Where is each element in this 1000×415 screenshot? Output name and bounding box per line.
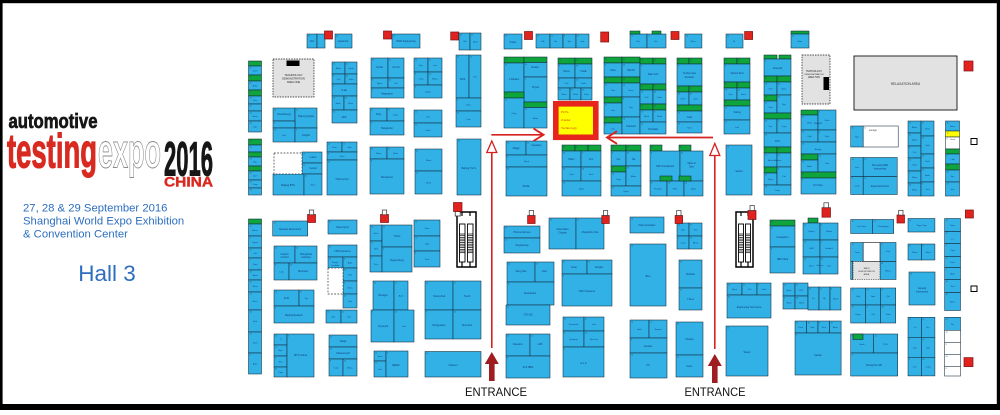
svg-text:18: 18 <box>804 259 806 261</box>
svg-text:10: 10 <box>505 36 507 38</box>
svg-text:SAVE: SAVE <box>523 184 530 188</box>
svg-text:10: 10 <box>333 64 335 66</box>
svg-text:12: 12 <box>923 319 925 321</box>
svg-text:24: 24 <box>576 66 578 68</box>
svg-text:10: 10 <box>725 60 727 62</box>
svg-text:Test: Test <box>282 134 286 137</box>
svg-text:8: 8 <box>923 246 924 248</box>
svg-text:6: 6 <box>559 80 560 82</box>
svg-text:12: 12 <box>875 336 877 338</box>
svg-text:Cetim: Cetim <box>687 365 693 368</box>
svg-text:Tech: Tech <box>825 136 830 138</box>
svg-text:Hirain & Goldser: Hirain & Goldser <box>639 224 656 227</box>
svg-text:12: 12 <box>296 110 298 112</box>
svg-text:Vibro: Vibro <box>673 188 679 191</box>
svg-text:10: 10 <box>457 57 459 59</box>
svg-text:12: 12 <box>867 290 869 292</box>
svg-text:Gm: Gm <box>617 159 621 161</box>
svg-text:18: 18 <box>765 135 767 137</box>
svg-text:CHINA: CHINA <box>164 175 213 190</box>
svg-text:Tech: Tech <box>925 161 930 163</box>
svg-text:Meas: Meas <box>631 176 637 178</box>
svg-text:10: 10 <box>605 59 607 61</box>
svg-text:8: 8 <box>564 333 565 335</box>
svg-text:8: 8 <box>589 147 590 149</box>
svg-text:14: 14 <box>250 294 252 296</box>
svg-text:6: 6 <box>344 283 345 285</box>
svg-text:8: 8 <box>678 66 679 68</box>
svg-text:Meas: Meas <box>252 230 258 232</box>
svg-text:10: 10 <box>329 222 331 224</box>
svg-text:10: 10 <box>728 285 730 287</box>
svg-text:8: 8 <box>275 358 276 360</box>
svg-text:Auto: Auto <box>253 363 258 366</box>
svg-text:Hangsterfer: Hangsterfer <box>381 127 393 130</box>
svg-text:10: 10 <box>564 319 566 321</box>
svg-text:24: 24 <box>585 333 587 335</box>
svg-text:Chn Int: Chn Int <box>392 66 400 69</box>
svg-text:8: 8 <box>651 153 652 155</box>
svg-text:24: 24 <box>525 64 527 66</box>
svg-text:12: 12 <box>371 243 373 245</box>
svg-text:Webasto: Webasto <box>686 273 696 276</box>
svg-text:12: 12 <box>470 57 472 59</box>
svg-text:Tech: Tech <box>589 174 594 176</box>
svg-text:Kern: Kern <box>950 224 955 227</box>
svg-text:Kern: Kern <box>584 93 589 96</box>
svg-text:18: 18 <box>882 307 884 309</box>
svg-text:Wuxi: Wuxi <box>573 94 578 96</box>
svg-text:10: 10 <box>374 283 376 285</box>
svg-text:ETS: ETS <box>775 141 780 143</box>
svg-text:SGS: SGS <box>460 77 466 81</box>
svg-text:30: 30 <box>627 168 629 170</box>
svg-text:Opti: Opti <box>253 320 258 323</box>
svg-text:12: 12 <box>585 319 587 321</box>
svg-text:10: 10 <box>852 336 854 338</box>
svg-text:Data: Data <box>657 96 662 99</box>
svg-text:8: 8 <box>387 353 388 355</box>
svg-text:8: 8 <box>344 259 345 261</box>
svg-text:24: 24 <box>678 88 680 90</box>
svg-text:10: 10 <box>505 59 507 61</box>
svg-text:10: 10 <box>582 90 584 92</box>
svg-text:12: 12 <box>342 312 344 314</box>
svg-text:Lambda: Lambda <box>331 265 340 267</box>
svg-text:LPW-Sumitomo: LPW-Sumitomo <box>334 250 351 253</box>
svg-text:12: 12 <box>531 336 533 338</box>
svg-text:30: 30 <box>605 85 607 87</box>
svg-text:Auto: Auto <box>950 273 955 276</box>
svg-text:10: 10 <box>507 336 509 338</box>
svg-text:Guangzhou: Guangzhou <box>777 237 790 239</box>
svg-text:Tools: Tools <box>687 117 693 119</box>
svg-text:Corp: Corp <box>855 185 861 188</box>
svg-text:12: 12 <box>804 225 806 227</box>
svg-text:12: 12 <box>388 110 390 112</box>
svg-text:8: 8 <box>274 176 275 178</box>
svg-text:8: 8 <box>758 285 759 287</box>
svg-text:TUV: TUV <box>799 290 804 292</box>
svg-text:Data: Data <box>426 129 431 132</box>
svg-text:Instruments: Instruments <box>916 290 929 293</box>
svg-text:expo: expo <box>98 126 161 179</box>
svg-text:24: 24 <box>631 355 633 357</box>
svg-text:12: 12 <box>778 97 780 99</box>
svg-text:24: 24 <box>881 263 883 265</box>
svg-text:Auto: Auto <box>925 174 930 177</box>
svg-text:Hexagon: Hexagon <box>378 294 388 297</box>
svg-text:10: 10 <box>852 159 854 161</box>
svg-text:14: 14 <box>802 162 804 164</box>
svg-text:24: 24 <box>641 86 643 88</box>
svg-text:10: 10 <box>559 60 561 62</box>
svg-text:Engineering Test Centre: Engineering Test Centre <box>737 306 762 309</box>
svg-text:Wale Tech: Wale Tech <box>648 74 659 76</box>
svg-text:8: 8 <box>275 265 276 267</box>
svg-text:DEMONSTRATION: DEMONSTRATION <box>858 270 875 273</box>
svg-text:24: 24 <box>605 119 607 121</box>
svg-text:Temper: Temper <box>654 328 662 331</box>
svg-text:24: 24 <box>725 84 727 86</box>
svg-text:12: 12 <box>792 36 794 38</box>
svg-text:Cq Yinhe: Cq Yinhe <box>857 226 867 228</box>
svg-text:Yantai Jbell: Yantai Jbell <box>433 295 446 298</box>
svg-text:24: 24 <box>383 227 385 229</box>
svg-text:Meas: Meas <box>693 243 699 245</box>
svg-text:HBK China: HBK China <box>777 259 789 261</box>
svg-text:8: 8 <box>415 74 416 76</box>
svg-text:Res Inst: Res Inst <box>590 338 598 341</box>
svg-text:Cingbo: Cingbo <box>302 133 311 137</box>
svg-text:18: 18 <box>765 187 767 189</box>
svg-text:18: 18 <box>250 272 252 274</box>
svg-text:6: 6 <box>605 125 606 127</box>
svg-text:24: 24 <box>909 160 911 162</box>
svg-text:Dyno: Dyno <box>377 83 383 85</box>
svg-text:TECHNOLOGY: TECHNOLOGY <box>284 73 302 77</box>
svg-text:Ctrl: Ctrl <box>782 175 786 178</box>
svg-text:Sens: Sens <box>950 302 956 304</box>
svg-text:10: 10 <box>336 36 338 38</box>
svg-text:12: 12 <box>771 228 773 230</box>
svg-text:10: 10 <box>909 123 911 125</box>
svg-text:6: 6 <box>651 183 652 185</box>
svg-text:24: 24 <box>690 238 692 240</box>
svg-text:12: 12 <box>802 117 804 119</box>
svg-text:Instruments: Instruments <box>874 167 887 170</box>
svg-text:Scantech: Scantech <box>626 125 636 128</box>
svg-text:24: 24 <box>344 361 346 363</box>
svg-text:Meas: Meas <box>885 271 891 273</box>
svg-text:Inst: Inst <box>347 316 351 319</box>
svg-text:Auto: Auto <box>473 41 478 44</box>
svg-text:Corp: Corp <box>782 125 788 128</box>
svg-text:T.Sens: T.Sens <box>687 299 695 301</box>
svg-text:8: 8 <box>882 290 883 292</box>
svg-text:Sensor: Sensor <box>817 264 824 267</box>
svg-text:10: 10 <box>415 222 417 224</box>
svg-text:18: 18 <box>612 174 614 176</box>
svg-text:12: 12 <box>429 60 431 62</box>
svg-text:Inst: Inst <box>581 40 585 43</box>
svg-text:18: 18 <box>946 281 948 283</box>
svg-text:8: 8 <box>947 139 948 141</box>
svg-text:12: 12 <box>415 125 417 127</box>
svg-text:10: 10 <box>631 219 633 221</box>
svg-text:Tech: Tech <box>340 156 345 158</box>
svg-text:8: 8 <box>274 123 275 125</box>
svg-text:10: 10 <box>631 246 633 248</box>
svg-text:Wuxi: Wuxi <box>253 286 258 288</box>
svg-text:10: 10 <box>375 353 377 355</box>
svg-text:8: 8 <box>507 157 508 159</box>
svg-text:Dyno: Dyno <box>912 140 918 142</box>
svg-text:12: 12 <box>343 144 345 146</box>
svg-text:8: 8 <box>426 312 427 314</box>
svg-text:14: 14 <box>333 112 335 114</box>
svg-text:Dyno: Dyno <box>623 191 629 193</box>
svg-text:Corp: Corp <box>616 178 622 181</box>
svg-text:Auto: Auto <box>399 295 404 298</box>
svg-text:Vac: Vac <box>951 324 954 326</box>
svg-text:10: 10 <box>250 141 252 143</box>
svg-text:24: 24 <box>563 153 565 155</box>
svg-text:8: 8 <box>771 249 772 251</box>
svg-text:10: 10 <box>727 328 729 330</box>
svg-text:10: 10 <box>677 324 679 326</box>
svg-text:Auto: Auto <box>833 326 838 329</box>
svg-text:24: 24 <box>623 65 625 67</box>
svg-text:Test: Test <box>402 325 406 328</box>
svg-text:12: 12 <box>375 363 377 365</box>
svg-text:10: 10 <box>250 123 252 125</box>
svg-text:Data: Data <box>393 114 398 117</box>
svg-text:Kern: Kern <box>425 227 430 230</box>
svg-text:10: 10 <box>725 108 727 110</box>
svg-text:6: 6 <box>947 156 948 158</box>
svg-text:12: 12 <box>416 173 418 175</box>
svg-text:24: 24 <box>328 162 330 164</box>
svg-text:Wuxi: Wuxi <box>912 190 917 192</box>
svg-text:Shenz: Shenz <box>563 71 570 73</box>
svg-text:14: 14 <box>947 184 949 186</box>
svg-text:12: 12 <box>864 159 866 161</box>
svg-text:6: 6 <box>383 249 384 251</box>
svg-text:12: 12 <box>808 323 810 325</box>
svg-text:10: 10 <box>329 247 331 249</box>
svg-text:10: 10 <box>508 264 510 266</box>
svg-text:24: 24 <box>250 159 252 161</box>
svg-text:Elektro-: Elektro- <box>532 66 540 69</box>
svg-text:10: 10 <box>308 36 310 38</box>
svg-text:10: 10 <box>426 283 428 285</box>
svg-text:SiSen: SiSen <box>826 231 833 233</box>
svg-text:Lufent: Lufent <box>310 156 317 159</box>
svg-text:6: 6 <box>821 242 822 244</box>
svg-text:POD: POD <box>883 344 888 346</box>
svg-text:24: 24 <box>507 169 509 171</box>
svg-text:Thermotron: Thermotron <box>335 177 349 181</box>
svg-text:6: 6 <box>738 84 739 86</box>
svg-text:Kistler: Kistler <box>510 41 517 44</box>
svg-text:30: 30 <box>345 98 347 100</box>
svg-text:8: 8 <box>821 225 822 227</box>
svg-text:Ctrl: Ctrl <box>748 288 752 291</box>
svg-text:12: 12 <box>303 165 305 167</box>
svg-text:10: 10 <box>612 147 614 149</box>
svg-text:27, 28 & 29 September 2016: 27, 28 & 29 September 2016 <box>23 203 167 215</box>
svg-text:Opti: Opti <box>374 248 379 251</box>
svg-text:Garden: Garden <box>814 354 823 357</box>
svg-text:Zander: Zander <box>561 118 571 122</box>
svg-text:Dyno: Dyno <box>425 92 431 94</box>
svg-text:12: 12 <box>802 174 804 176</box>
svg-text:6: 6 <box>867 307 868 309</box>
svg-text:8: 8 <box>612 153 613 155</box>
svg-text:10: 10 <box>680 290 682 292</box>
svg-text:NI China: NI China <box>814 185 824 187</box>
svg-text:Ds: Ds <box>812 298 814 300</box>
svg-text:10: 10 <box>460 35 462 37</box>
svg-text:Auto: Auto <box>691 188 696 191</box>
svg-text:Touch: Touch <box>464 295 471 298</box>
svg-text:Inst: Inst <box>951 188 955 191</box>
svg-text:Auto: Auto <box>579 188 584 191</box>
svg-text:10: 10 <box>525 109 527 111</box>
svg-text:10: 10 <box>631 36 633 38</box>
svg-text:Atesteo: Atesteo <box>774 159 782 162</box>
svg-text:8: 8 <box>831 289 832 291</box>
svg-text:12: 12 <box>250 147 252 149</box>
svg-text:12: 12 <box>346 64 348 66</box>
svg-text:General: General <box>918 287 927 290</box>
svg-text:Wuxi: Wuxi <box>393 153 398 155</box>
svg-text:8: 8 <box>371 161 372 163</box>
svg-text:18: 18 <box>668 183 670 185</box>
svg-text:18: 18 <box>505 94 507 96</box>
svg-text:Shan: Shan <box>252 275 258 277</box>
svg-text:24: 24 <box>804 242 806 244</box>
svg-text:Inst: Inst <box>433 64 437 67</box>
svg-text:12: 12 <box>588 262 590 264</box>
svg-text:12: 12 <box>654 60 656 62</box>
svg-text:8: 8 <box>678 238 679 240</box>
svg-text:24: 24 <box>641 124 643 126</box>
svg-text:Tech: Tech <box>821 327 826 329</box>
svg-text:Corp: Corp <box>278 371 284 374</box>
svg-text:8: 8 <box>564 36 565 38</box>
svg-text:8: 8 <box>563 276 564 278</box>
svg-text:12: 12 <box>388 149 390 151</box>
svg-text:10: 10 <box>550 220 552 222</box>
svg-text:Jointech: Jointech <box>825 247 834 250</box>
svg-text:14: 14 <box>765 97 767 99</box>
svg-text:12: 12 <box>678 124 680 126</box>
svg-text:12: 12 <box>881 244 883 246</box>
svg-text:8: 8 <box>372 312 373 314</box>
svg-text:Opti: Opti <box>569 173 574 176</box>
svg-text:24: 24 <box>305 176 307 178</box>
svg-text:Chongqing: Chongqing <box>878 226 889 228</box>
svg-text:10: 10 <box>371 149 373 151</box>
svg-text:10: 10 <box>275 292 277 294</box>
svg-text:Test: Test <box>253 99 257 102</box>
svg-text:8: 8 <box>372 80 373 82</box>
svg-text:DEMONSTRATION: DEMONSTRATION <box>804 73 823 76</box>
svg-text:ENTRANCE: ENTRANCE <box>465 387 527 399</box>
svg-text:24: 24 <box>796 298 798 300</box>
svg-text:Beijing T.E.S.: Beijing T.E.S. <box>462 167 477 170</box>
svg-text:Opti: Opti <box>925 144 930 147</box>
svg-text:Test: Test <box>951 285 955 288</box>
svg-text:24: 24 <box>250 83 252 85</box>
svg-text:Shan: Shan <box>335 103 341 105</box>
svg-text:12: 12 <box>250 226 252 228</box>
svg-text:Veri: Veri <box>310 39 315 43</box>
svg-text:8: 8 <box>654 112 655 114</box>
svg-text:Dyno: Dyno <box>524 161 530 163</box>
svg-text:MENK: MENK <box>392 363 400 367</box>
svg-text:6: 6 <box>605 79 606 81</box>
svg-text:30: 30 <box>250 106 252 108</box>
svg-text:Kern: Kern <box>798 326 803 329</box>
svg-text:Cq Met: Cq Met <box>376 66 384 69</box>
svg-text:10: 10 <box>678 113 680 115</box>
svg-text:8: 8 <box>631 340 632 342</box>
svg-text:10: 10 <box>909 220 911 222</box>
svg-text:6: 6 <box>946 368 947 370</box>
svg-text:6: 6 <box>250 92 251 94</box>
svg-text:Arm: Arm <box>589 158 593 161</box>
svg-text:Corp: Corp <box>253 183 259 186</box>
svg-text:Panasonic: Panasonic <box>381 175 394 179</box>
svg-text:Shan: Shan <box>833 299 839 301</box>
svg-text:Beijing Reatech: Beijing Reatech <box>285 314 303 317</box>
svg-text:10: 10 <box>426 353 428 355</box>
svg-text:Auto: Auto <box>348 262 353 265</box>
svg-text:17D-120: 17D-120 <box>523 314 533 317</box>
svg-text:Meas: Meas <box>347 368 353 370</box>
svg-text:6: 6 <box>525 79 526 81</box>
svg-text:8: 8 <box>457 100 458 102</box>
svg-text:18: 18 <box>563 169 565 171</box>
svg-text:12: 12 <box>922 170 924 172</box>
svg-text:8: 8 <box>922 184 923 186</box>
svg-text:24: 24 <box>454 312 456 314</box>
svg-text:10: 10 <box>852 244 854 246</box>
svg-text:Data: Data <box>349 78 354 81</box>
svg-text:12: 12 <box>627 147 629 149</box>
svg-text:Standex Electronics: Standex Electronics <box>279 228 302 231</box>
svg-text:Data: Data <box>886 313 891 316</box>
svg-text:12: 12 <box>505 65 507 67</box>
svg-text:10: 10 <box>765 155 767 157</box>
svg-text:8: 8 <box>802 180 803 182</box>
svg-text:12: 12 <box>680 147 682 149</box>
svg-text:6: 6 <box>288 336 289 338</box>
svg-text:Channel-tech: Channel-tech <box>336 352 350 355</box>
svg-text:& Convention Center: & Convention Center <box>23 229 128 241</box>
svg-text:12: 12 <box>551 36 553 38</box>
svg-text:10: 10 <box>415 112 417 114</box>
svg-text:Beijing BTS: Beijing BTS <box>281 183 295 187</box>
svg-text:10: 10 <box>415 60 417 62</box>
svg-text:Wuxi: Wuxi <box>799 303 804 305</box>
svg-text:24: 24 <box>457 113 459 115</box>
svg-text:10: 10 <box>605 99 607 101</box>
svg-text:8: 8 <box>819 323 820 325</box>
